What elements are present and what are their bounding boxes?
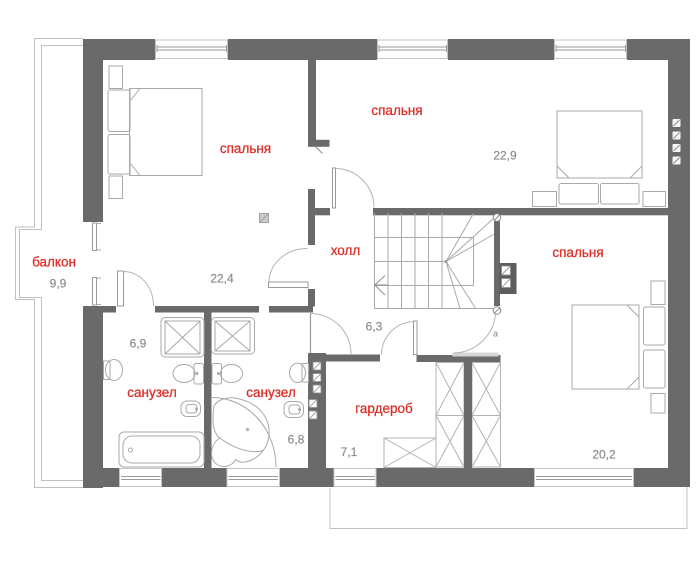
svg-text:22,9: 22,9	[493, 149, 517, 163]
svg-text:спальня: спальня	[552, 245, 603, 260]
svg-text:22,4: 22,4	[210, 272, 234, 286]
svg-text:9,9: 9,9	[50, 277, 67, 291]
svg-text:6,8: 6,8	[288, 433, 305, 447]
svg-text:спальня: спальня	[220, 141, 271, 156]
svg-text:балкон: балкон	[32, 255, 76, 270]
svg-text:санузел: санузел	[127, 385, 176, 400]
svg-text:холл: холл	[331, 243, 361, 258]
svg-text:7,1: 7,1	[341, 445, 358, 459]
svg-text:гардероб: гардероб	[355, 401, 413, 416]
svg-text:20,2: 20,2	[592, 448, 616, 462]
svg-text:6,9: 6,9	[130, 337, 147, 351]
svg-text:6,3: 6,3	[366, 320, 383, 334]
svg-text:санузел: санузел	[246, 385, 295, 400]
svg-text:a: a	[493, 329, 498, 339]
svg-text:спальня: спальня	[371, 103, 422, 118]
